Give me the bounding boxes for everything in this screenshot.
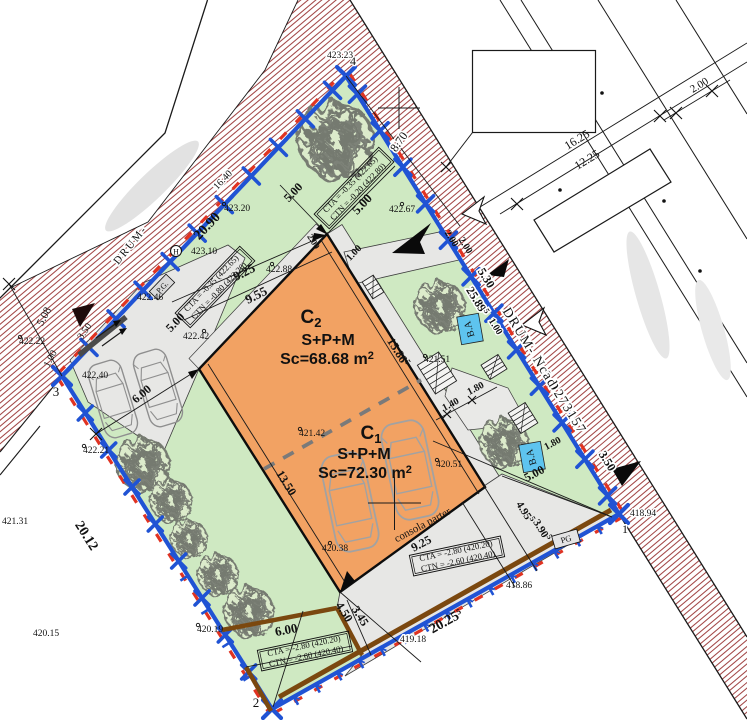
svg-text:422.67: 422.67 [389,205,415,215]
svg-text:S+P+M: S+P+M [301,332,354,349]
svg-text:422.46: 422.46 [137,293,163,303]
svg-text:423.10: 423.10 [191,247,217,257]
svg-text:S+P+M: S+P+M [337,446,390,463]
svg-text:420.38: 420.38 [322,544,348,554]
svg-text:418.86: 418.86 [506,581,532,591]
svg-text:422.42: 422.42 [183,332,209,342]
svg-text:3: 3 [53,384,60,399]
svg-text:H: H [173,248,179,257]
svg-text:422.40: 422.40 [82,371,108,381]
svg-text:2: 2 [253,695,260,710]
svg-text:421.42: 421.42 [299,429,325,439]
svg-text:422.22: 422.22 [19,337,45,347]
svg-text:Sc=72.30 m2: Sc=72.30 m2 [318,464,412,482]
svg-text:4: 4 [350,54,356,68]
svg-text:423.20: 423.20 [224,204,250,214]
svg-text:420.15: 420.15 [33,629,59,639]
svg-text:422.88: 422.88 [266,265,292,275]
svg-text:419.18: 419.18 [400,635,426,645]
svg-text:421.31: 421.31 [2,517,28,527]
svg-text:420.51: 420.51 [436,460,462,470]
svg-text:420.19: 420.19 [197,625,223,635]
svg-text:Sc=68.68 m2: Sc=68.68 m2 [280,350,374,368]
svg-text:422.21: 422.21 [83,446,109,456]
svg-text:418.94: 418.94 [630,509,656,519]
svg-text:1: 1 [622,522,628,536]
svg-text:421.51: 421.51 [424,355,450,365]
